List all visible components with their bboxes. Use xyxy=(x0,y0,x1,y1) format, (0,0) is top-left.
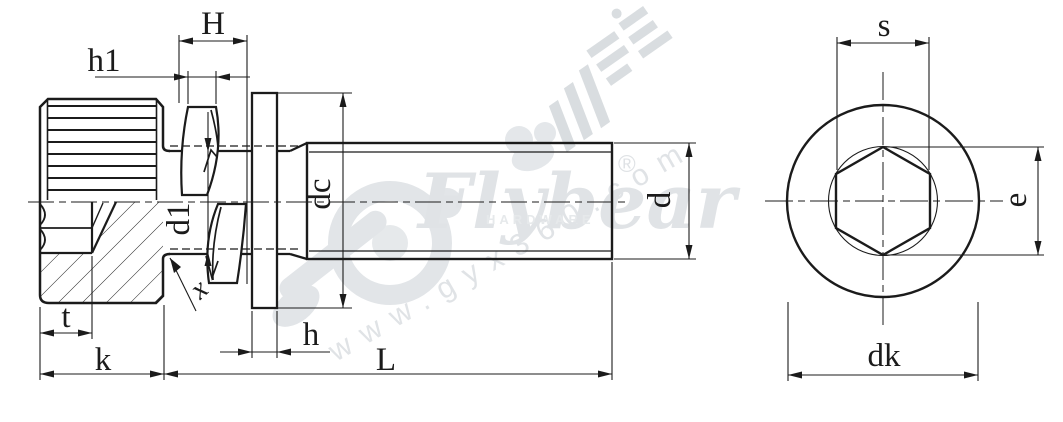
screw-head xyxy=(40,99,170,303)
flat-washer xyxy=(252,93,277,308)
dim-label-h1: h1 xyxy=(88,43,121,79)
dim-label-h: h xyxy=(303,317,320,353)
screw-drawing-svg: Flybear HARDWARE ® www.gyx360.com xyxy=(0,0,1063,422)
dim-label-d: d xyxy=(642,191,678,208)
dim-label-L: L xyxy=(376,342,396,378)
dim-label-k: k xyxy=(95,342,112,378)
dim-label-dc: dc xyxy=(302,178,338,209)
dim-label-d1: d1 xyxy=(161,203,197,236)
technical-drawing-page: Flybear HARDWARE ® www.gyx360.com xyxy=(0,0,1063,422)
dim-label-e: e xyxy=(998,193,1034,208)
knurling-lines xyxy=(47,106,157,190)
dim-label-dk: dk xyxy=(868,338,902,374)
dim-label-t: t xyxy=(61,299,70,335)
dim-label-s: s xyxy=(878,8,891,44)
end-view: s e dk xyxy=(765,8,1044,381)
dim-label-H: H xyxy=(201,6,225,42)
knurl-band-edges xyxy=(48,100,157,200)
arrowheads-end-view xyxy=(788,40,1042,379)
spring-washer xyxy=(181,107,246,283)
